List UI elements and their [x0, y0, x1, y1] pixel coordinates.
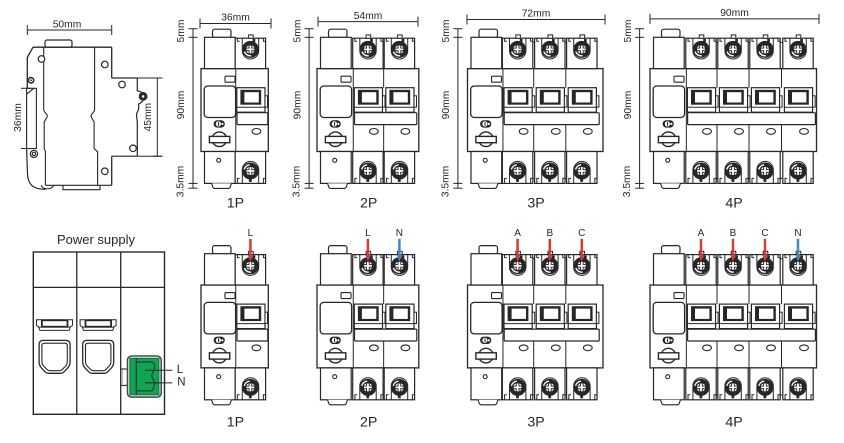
- svg-text:1P: 1P: [227, 415, 244, 431]
- svg-text:3.5mm: 3.5mm: [622, 166, 633, 197]
- svg-text:45mm: 45mm: [143, 103, 154, 132]
- svg-text:72mm: 72mm: [522, 9, 551, 20]
- svg-text:3.5mm: 3.5mm: [440, 166, 451, 197]
- svg-text:90mm: 90mm: [176, 91, 187, 120]
- svg-text:90mm: 90mm: [292, 91, 303, 120]
- svg-text:90mm: 90mm: [720, 8, 749, 19]
- svg-text:A: A: [514, 228, 521, 239]
- svg-text:1P: 1P: [227, 196, 244, 212]
- svg-text:L: L: [248, 228, 254, 239]
- svg-text:3P: 3P: [527, 415, 544, 431]
- svg-text:L: L: [365, 228, 371, 239]
- svg-text:A: A: [698, 228, 705, 239]
- svg-text:5mm: 5mm: [623, 20, 634, 43]
- svg-text:54mm: 54mm: [354, 11, 383, 22]
- svg-text:50mm: 50mm: [53, 19, 82, 30]
- svg-text:L: L: [177, 364, 184, 376]
- svg-text:B: B: [546, 228, 553, 239]
- svg-text:90mm: 90mm: [441, 91, 452, 120]
- svg-text:Power supply: Power supply: [57, 232, 136, 247]
- svg-text:4P: 4P: [725, 196, 742, 212]
- svg-text:36mm: 36mm: [13, 103, 24, 132]
- svg-text:2P: 2P: [360, 196, 377, 212]
- svg-text:3.5mm: 3.5mm: [292, 166, 303, 197]
- svg-text:5mm: 5mm: [292, 20, 303, 43]
- svg-text:B: B: [730, 228, 737, 239]
- svg-text:3.5mm: 3.5mm: [176, 166, 187, 197]
- svg-text:36mm: 36mm: [221, 13, 250, 24]
- svg-text:N: N: [396, 228, 403, 239]
- svg-text:C: C: [761, 228, 768, 239]
- svg-text:C: C: [578, 228, 585, 239]
- svg-text:N: N: [794, 228, 801, 239]
- svg-text:2P: 2P: [360, 415, 377, 431]
- svg-text:3P: 3P: [527, 196, 544, 212]
- svg-text:5mm: 5mm: [176, 20, 187, 43]
- svg-text:4P: 4P: [725, 415, 742, 431]
- svg-text:N: N: [177, 377, 185, 389]
- svg-text:90mm: 90mm: [623, 91, 634, 120]
- svg-text:5mm: 5mm: [441, 20, 452, 43]
